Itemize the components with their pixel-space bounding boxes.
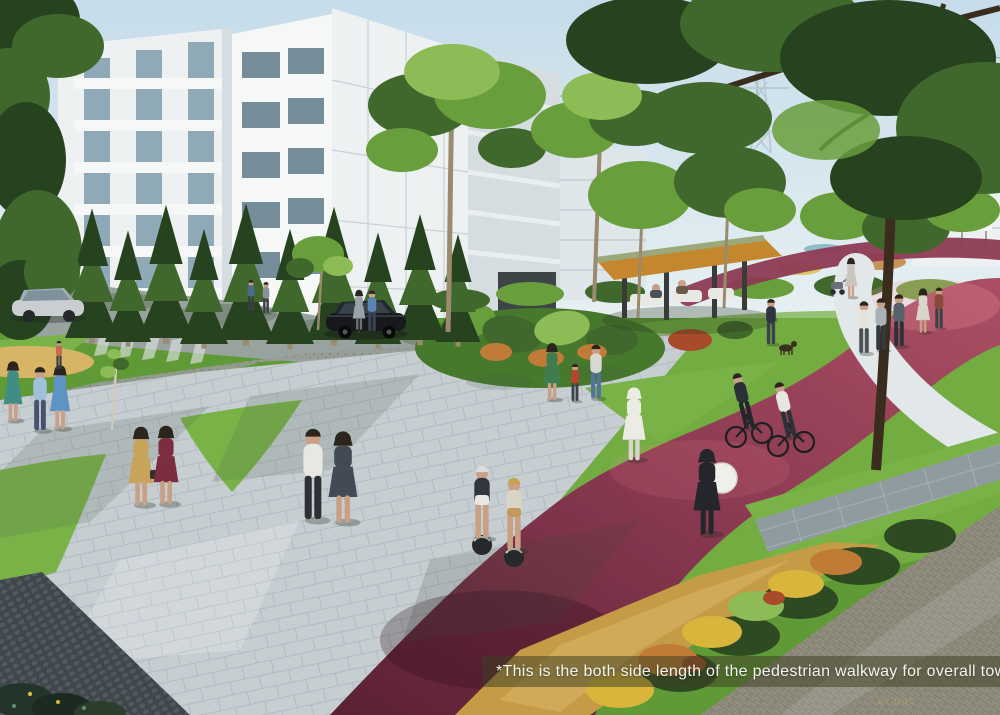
watermark: BY DMC	[878, 697, 916, 706]
scene	[0, 0, 1000, 715]
caption-text: *This is the both side length of the ped…	[496, 663, 1000, 681]
caption-band: *This is the both side length of the ped…	[483, 656, 1000, 687]
rendering-canvas: *This is the both side length of the ped…	[0, 0, 1000, 715]
